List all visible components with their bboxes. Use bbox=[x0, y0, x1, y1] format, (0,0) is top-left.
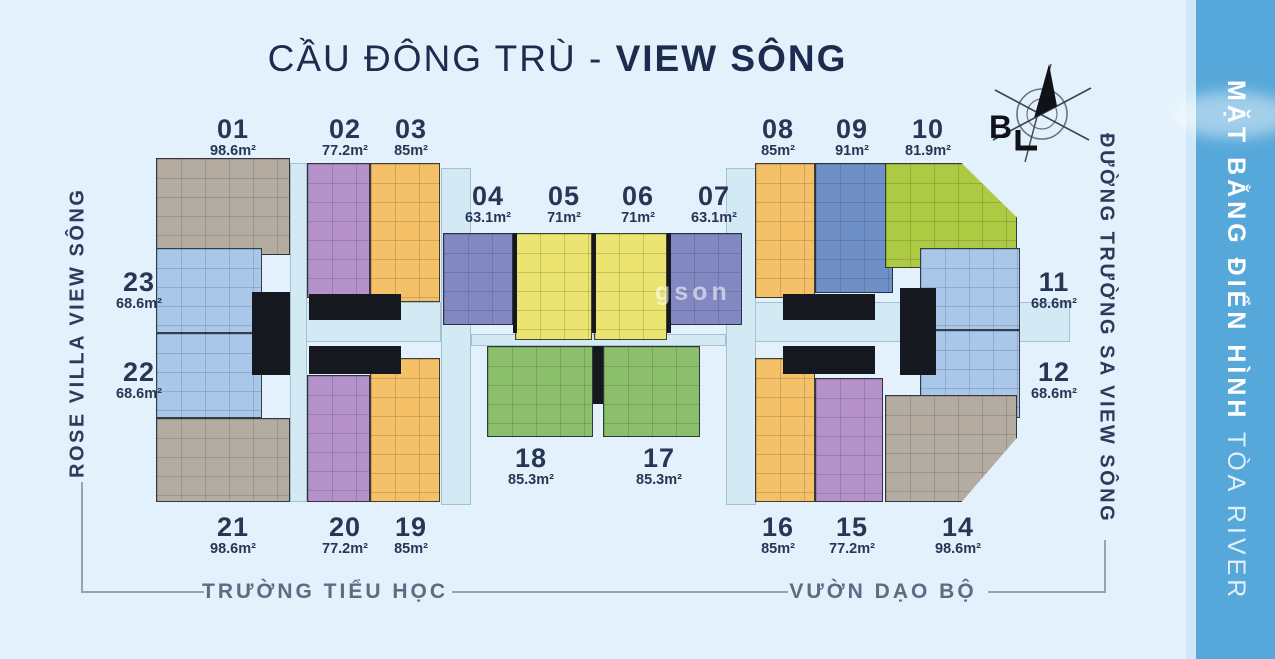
unit-area: 85m² bbox=[365, 144, 457, 159]
unit-03-label: 0385m² bbox=[365, 115, 457, 160]
unit-01-label: 0198.6m² bbox=[187, 115, 279, 160]
unit-07-block bbox=[669, 233, 742, 325]
page-title: CẦU ĐÔNG TRÙ - VIEW SÔNG bbox=[0, 38, 1115, 80]
unit-area: 68.6m² bbox=[93, 297, 185, 312]
unit-area: 98.6m² bbox=[187, 144, 279, 159]
unit-number: 23 bbox=[93, 268, 185, 296]
unit-area: 85.3m² bbox=[613, 473, 705, 488]
unit-area: 68.6m² bbox=[93, 387, 185, 402]
unit-20-label: 2077.2m² bbox=[299, 513, 391, 558]
unit-17-label: 1785.3m² bbox=[613, 444, 705, 489]
core-stair-right bbox=[900, 288, 936, 375]
compass-north-label: B bbox=[989, 109, 1012, 145]
unit-number: 03 bbox=[365, 115, 457, 143]
unit-number: 11 bbox=[1008, 268, 1100, 296]
banner-title-light: TÒA RIVER bbox=[1222, 421, 1250, 601]
street-label-truong-sa: ĐƯỜNG TRƯỜNG SA VIEW SÔNG bbox=[1088, 118, 1124, 538]
unit-number: 18 bbox=[485, 444, 577, 472]
unit-03-block bbox=[370, 163, 440, 302]
core-lift-left-bottom bbox=[309, 346, 401, 374]
unit-16-block bbox=[755, 358, 815, 502]
unit-number: 17 bbox=[613, 444, 705, 472]
unit-area: 85.3m² bbox=[485, 473, 577, 488]
floorplan-page: CẦU ĐÔNG TRÙ - VIEW SÔNG B ROSE VILLA VI… bbox=[0, 0, 1275, 659]
street-label-rose-villa: ROSE VILLA VIEW SÔNG bbox=[60, 158, 96, 508]
unit-number: 16 bbox=[732, 513, 824, 541]
unit-number: 10 bbox=[882, 115, 974, 143]
side-banner-text: MẶT BẰNG ĐIỂN HÌNH TÒA RIVER bbox=[1221, 80, 1250, 601]
bracket-tick-left bbox=[81, 482, 83, 593]
unit-02-block bbox=[307, 163, 370, 298]
street-label-school: TRƯỜNG TIỂU HỌC bbox=[202, 580, 442, 604]
title-prefix: CẦU ĐÔNG TRÙ - bbox=[268, 38, 616, 79]
unit-22-label: 2268.6m² bbox=[93, 358, 185, 403]
unit-18-label: 1885.3m² bbox=[485, 444, 577, 489]
bracket-line-1 bbox=[82, 591, 204, 593]
compass-icon: B bbox=[985, 60, 1095, 170]
unit-14-block bbox=[885, 395, 1017, 502]
core-lift-right-bottom bbox=[783, 346, 875, 374]
unit-20-block bbox=[307, 375, 370, 502]
unit-number: 20 bbox=[299, 513, 391, 541]
unit-19-block bbox=[370, 358, 440, 502]
unit-10-label: 1081.9m² bbox=[882, 115, 974, 160]
unit-area: 77.2m² bbox=[299, 542, 391, 557]
unit-11-label: 1168.6m² bbox=[1008, 268, 1100, 313]
core-wall-2 bbox=[592, 233, 596, 333]
unit-08-block bbox=[755, 163, 815, 298]
unit-09-block bbox=[815, 163, 893, 293]
unit-number: 22 bbox=[93, 358, 185, 386]
unit-number: 01 bbox=[187, 115, 279, 143]
core-lift-left-top bbox=[309, 294, 401, 320]
unit-number: 14 bbox=[912, 513, 1004, 541]
core-wall-1 bbox=[513, 233, 517, 333]
unit-15-block bbox=[815, 378, 883, 502]
unit-number: 12 bbox=[1008, 358, 1100, 386]
unit-area: 85m² bbox=[732, 542, 824, 557]
unit-area: 81.9m² bbox=[882, 144, 974, 159]
title-emphasis: VIEW SÔNG bbox=[616, 38, 848, 79]
unit-area: 98.6m² bbox=[912, 542, 1004, 557]
unit-18-block bbox=[487, 346, 593, 437]
unit-05-block bbox=[515, 233, 592, 340]
unit-number: 21 bbox=[187, 513, 279, 541]
core-stair-left bbox=[252, 292, 290, 375]
core-wall-3 bbox=[667, 233, 671, 333]
core-wall-4 bbox=[593, 346, 603, 404]
core-lift-right-top bbox=[783, 294, 875, 320]
bracket-line-3 bbox=[988, 591, 1106, 593]
street-label-garden: VƯỜN DẠO BỘ bbox=[788, 580, 978, 604]
unit-01-block bbox=[156, 158, 290, 255]
unit-21-label: 2198.6m² bbox=[187, 513, 279, 558]
corridor-left-inner bbox=[290, 163, 307, 502]
unit-12-label: 1268.6m² bbox=[1008, 358, 1100, 403]
unit-area: 63.1m² bbox=[668, 211, 760, 226]
unit-14-label: 1498.6m² bbox=[912, 513, 1004, 558]
unit-21-block bbox=[156, 418, 290, 502]
unit-16-label: 1685m² bbox=[732, 513, 824, 558]
bracket-line-2 bbox=[452, 591, 788, 593]
bracket-tick-right bbox=[1104, 540, 1106, 593]
unit-23-label: 2368.6m² bbox=[93, 268, 185, 313]
unit-area: 68.6m² bbox=[1008, 387, 1100, 402]
unit-17-block bbox=[603, 346, 700, 437]
unit-area: 68.6m² bbox=[1008, 297, 1100, 312]
unit-number: 07 bbox=[668, 182, 760, 210]
unit-04-block bbox=[443, 233, 513, 325]
unit-06-block bbox=[594, 233, 667, 340]
unit-area: 98.6m² bbox=[187, 542, 279, 557]
unit-07-label: 0763.1m² bbox=[668, 182, 760, 227]
